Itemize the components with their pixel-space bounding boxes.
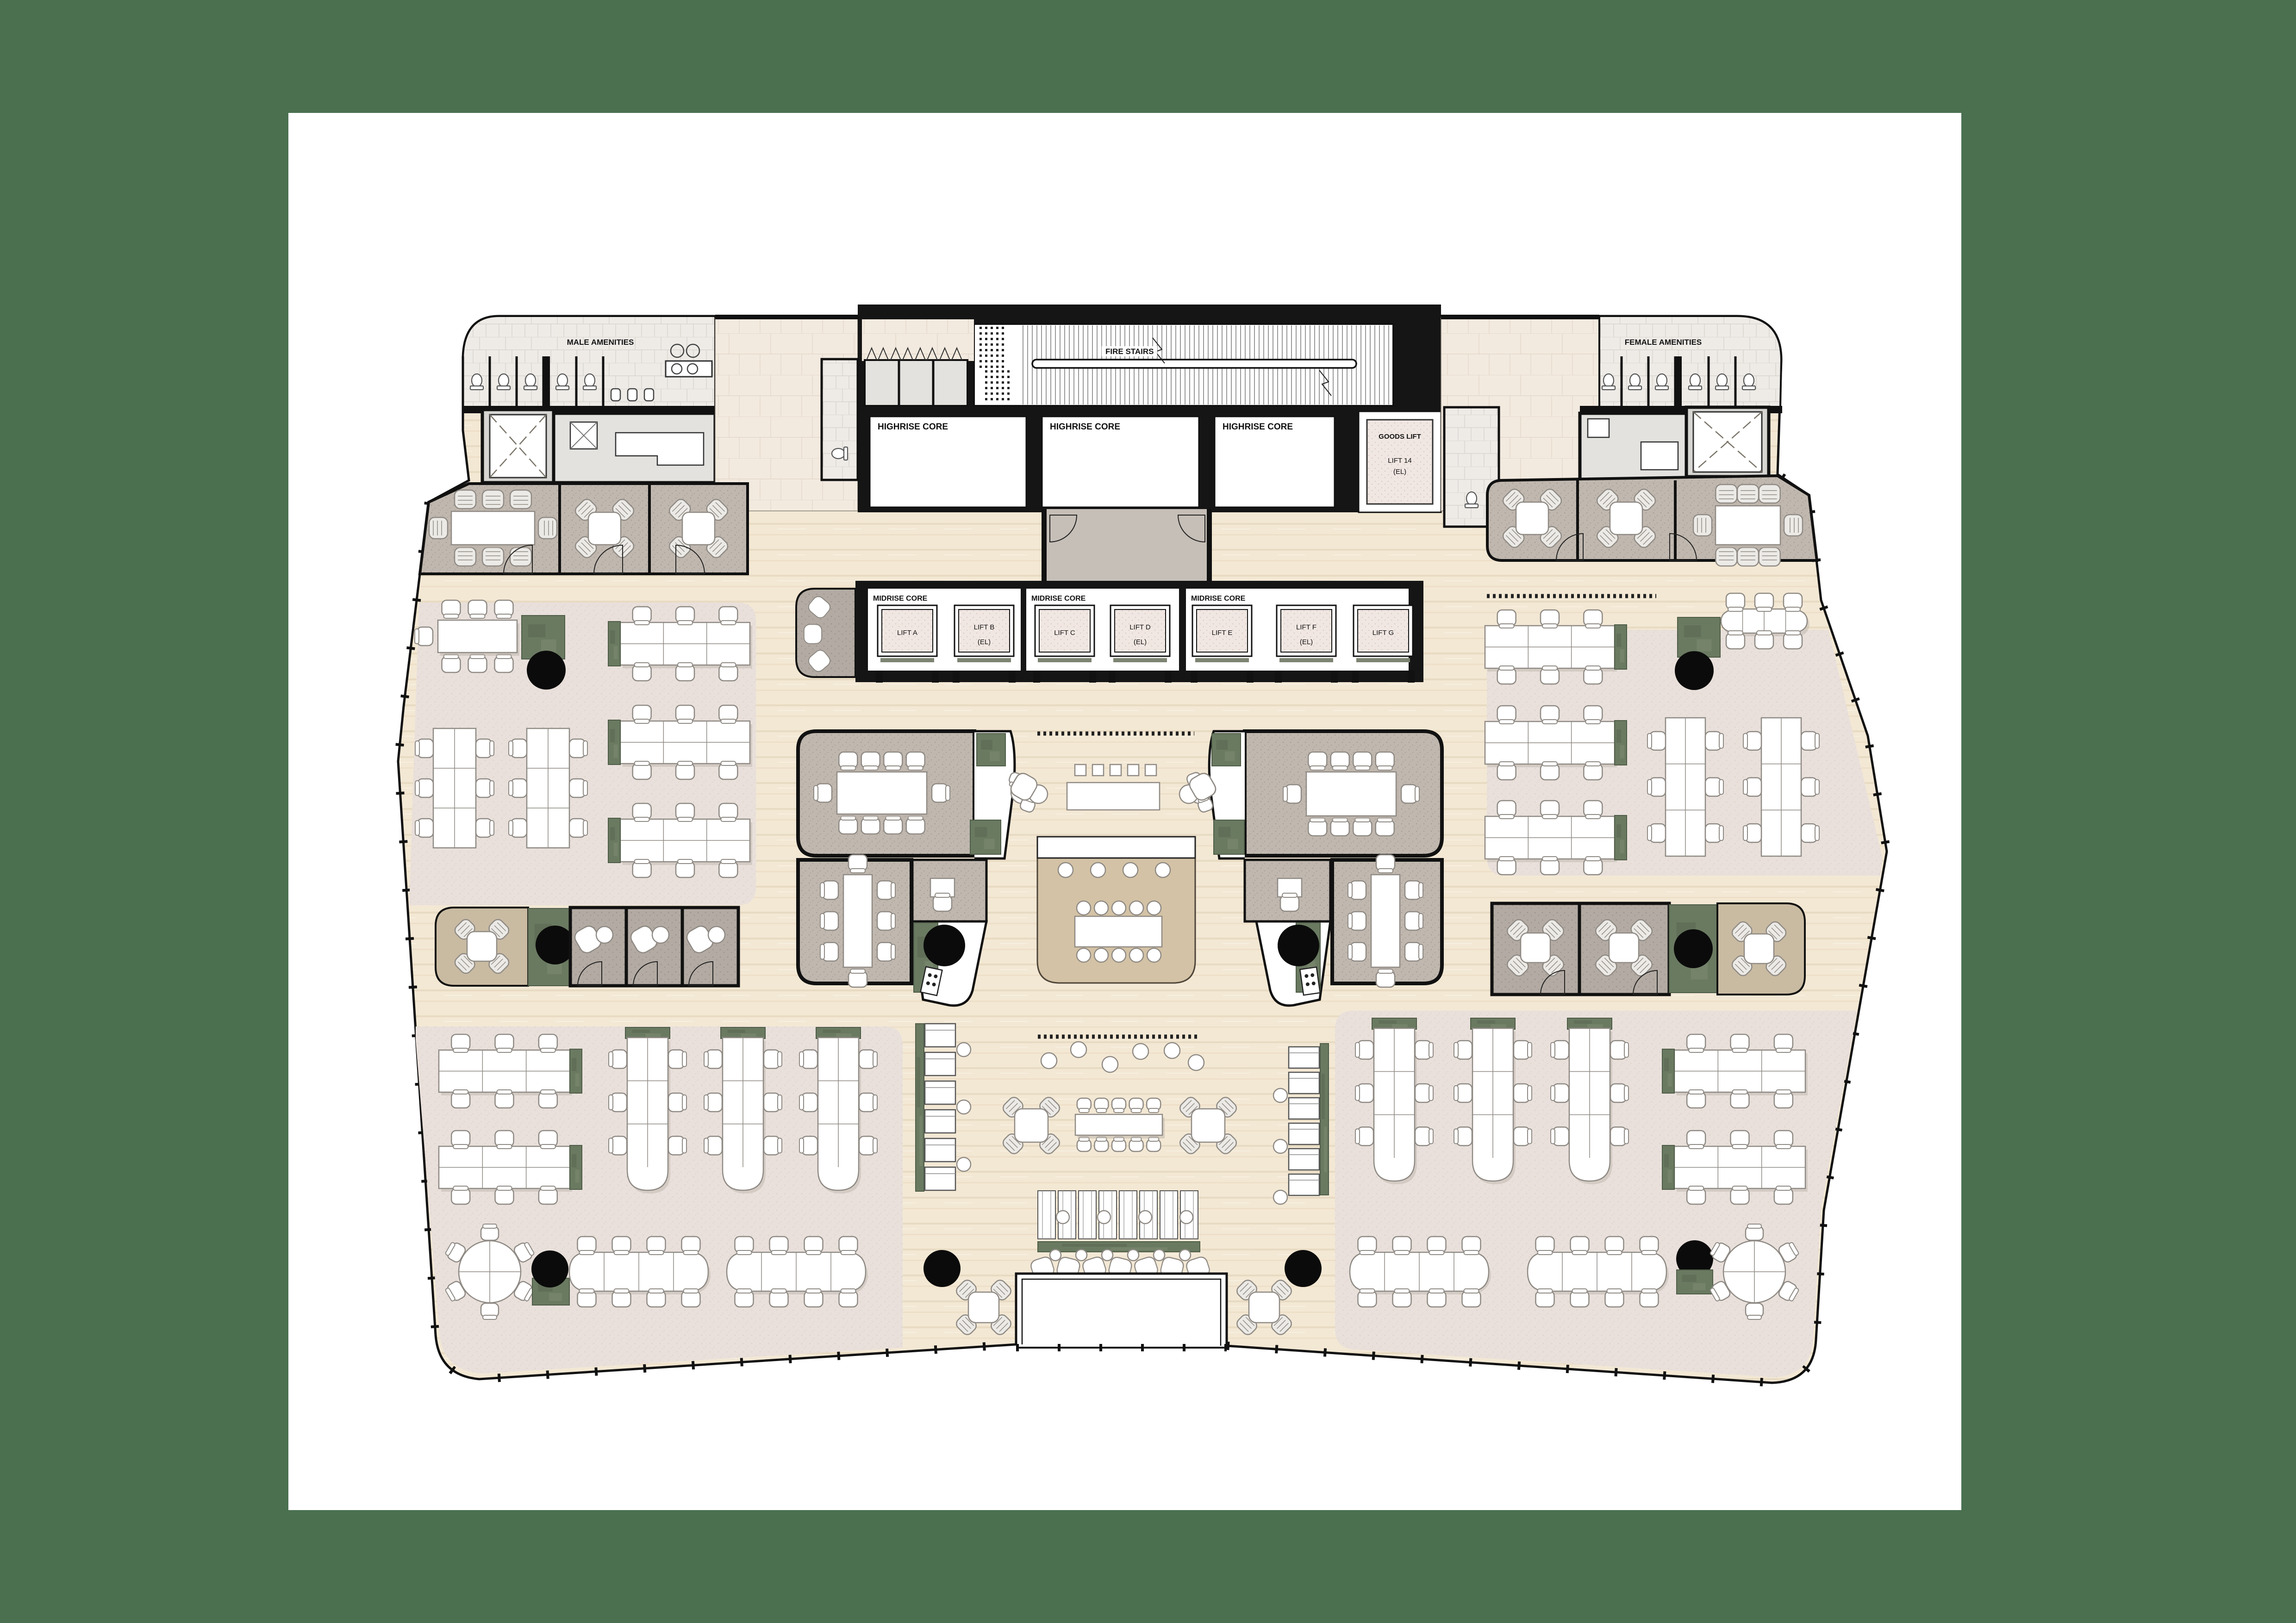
svg-text:LIFT C: LIFT C bbox=[1054, 629, 1075, 637]
svg-text:HIGHRISE CORE: HIGHRISE CORE bbox=[878, 422, 948, 432]
svg-text:(EL): (EL) bbox=[1393, 468, 1406, 476]
svg-text:(EL): (EL) bbox=[1300, 638, 1313, 646]
svg-text:LIFT B: LIFT B bbox=[974, 623, 995, 631]
svg-text:LIFT 14: LIFT 14 bbox=[1388, 457, 1411, 465]
svg-text:HIGHRISE CORE: HIGHRISE CORE bbox=[1223, 422, 1293, 432]
svg-text:LIFT G: LIFT G bbox=[1373, 629, 1394, 637]
svg-text:MIDRISE CORE: MIDRISE CORE bbox=[1191, 595, 1246, 603]
svg-text:MIDRISE CORE: MIDRISE CORE bbox=[1031, 595, 1086, 603]
svg-text:MALE AMENITIES: MALE AMENITIES bbox=[567, 338, 634, 347]
svg-text:LIFT A: LIFT A bbox=[897, 629, 917, 637]
svg-text:LIFT F: LIFT F bbox=[1296, 623, 1316, 631]
svg-text:(EL): (EL) bbox=[1134, 638, 1147, 646]
svg-text:LIFT E: LIFT E bbox=[1212, 629, 1233, 637]
svg-text:GOODS LIFT: GOODS LIFT bbox=[1379, 433, 1421, 441]
svg-text:FEMALE AMENITIES: FEMALE AMENITIES bbox=[1625, 338, 1702, 347]
svg-text:FIRE STAIRS: FIRE STAIRS bbox=[1105, 347, 1154, 356]
svg-text:HIGHRISE CORE: HIGHRISE CORE bbox=[1050, 422, 1120, 432]
svg-text:LIFT D: LIFT D bbox=[1129, 623, 1151, 631]
svg-text:(EL): (EL) bbox=[978, 638, 991, 646]
svg-text:MIDRISE CORE: MIDRISE CORE bbox=[873, 595, 928, 603]
